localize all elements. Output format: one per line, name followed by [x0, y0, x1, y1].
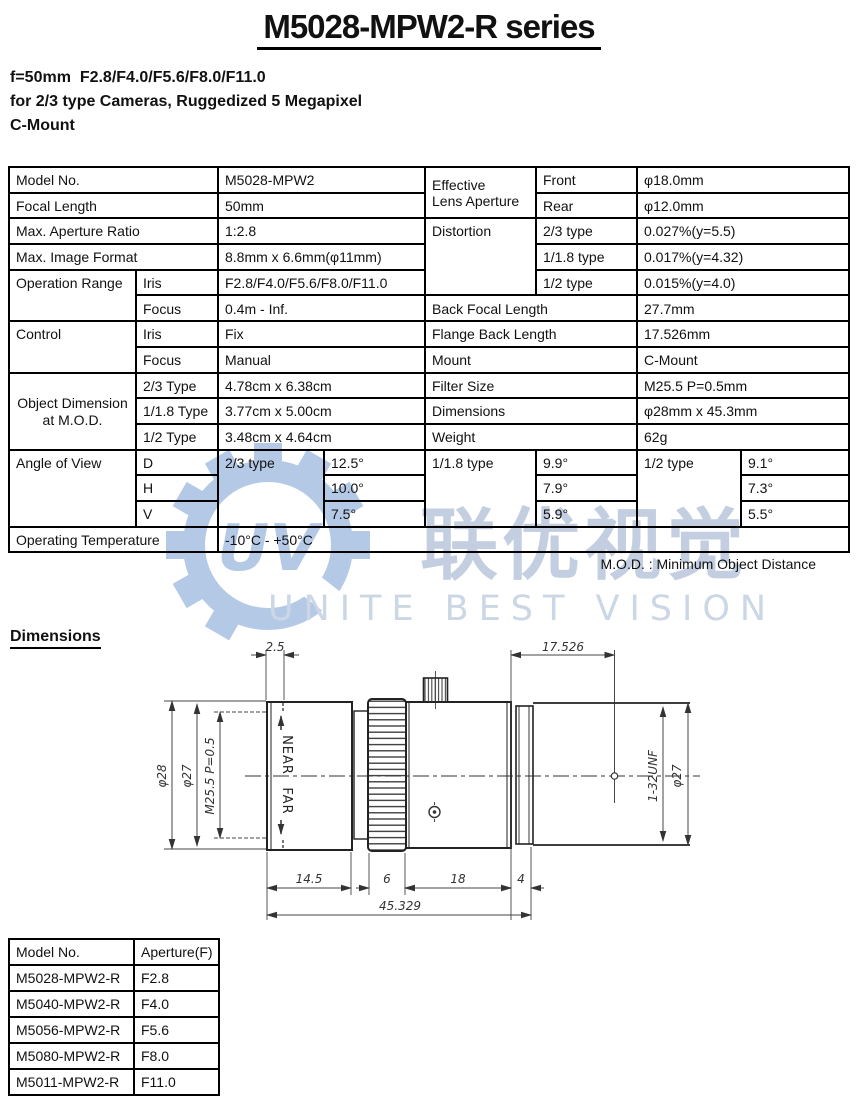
aperture-cell: F5.6: [134, 1017, 219, 1043]
spec-cell: 1/2 type: [637, 450, 741, 527]
spec-cell: M5028-MPW2: [218, 167, 425, 193]
spec-cell: Filter Size: [425, 373, 637, 399]
set-screw-hole: [429, 802, 440, 822]
watermark-en-text: UNITE BEST VISION: [268, 589, 776, 629]
spec-cell: φ12.0mm: [637, 193, 849, 219]
spec-cell: 17.526mm: [637, 321, 849, 347]
dim-17-526: 17.526: [511, 640, 615, 920]
spec-cell-line: Effective: [432, 177, 485, 193]
spec-cell: Dimensions: [425, 398, 637, 424]
spec-cell: 2/3 type: [218, 450, 324, 527]
model-cell: M5011-MPW2-R: [9, 1069, 134, 1095]
dim-2-5-label: 2.5: [265, 640, 284, 654]
title-wrap: M5028-MPW2-R series: [0, 8, 858, 50]
spec-cell: 3.48cm x 4.64cm: [218, 424, 425, 450]
spec-cell: 1:2.8: [218, 218, 425, 244]
dim-18: 18: [405, 872, 511, 888]
dim-6: 6: [356, 872, 418, 888]
spec-cell-line: Lens Aperture: [432, 193, 519, 209]
lens-body: [406, 702, 511, 848]
table-row: M5080-MPW2-R F8.0: [9, 1043, 219, 1069]
spec-cell: Focal Length: [9, 193, 218, 219]
spec-cell: φ18.0mm: [637, 167, 849, 193]
page-title: M5028-MPW2-R series: [257, 8, 600, 50]
spec-cell: 10.0°: [324, 475, 425, 501]
dim-18-label: 18: [450, 872, 466, 886]
spec-table: Model No. M5028-MPW2 EffectiveLens Apert…: [8, 166, 850, 553]
table-row: Object Dimensionat M.O.D. 2/3 Type 4.78c…: [9, 373, 849, 399]
spec-cell: Focus: [136, 295, 218, 321]
table-row: Control Iris Fix Flange Back Length 17.5…: [9, 321, 849, 347]
lock-screw: [424, 671, 448, 709]
spec-cell: Control: [9, 321, 136, 372]
far-label: FAR: [279, 787, 294, 814]
table-row: M5056-MPW2-R F5.6: [9, 1017, 219, 1043]
model-table-header: Model No.: [9, 939, 134, 965]
phi27-left-label: φ27: [180, 764, 194, 788]
header-line-focal: f=50mm F2.8/F4.0/F5.6/F8.0/F11.0: [10, 66, 362, 90]
dim-6-label: 6: [383, 872, 391, 886]
spec-cell: 62g: [637, 424, 849, 450]
table-row: Max. Aperture Ratio 1:2.8 Distortion 2/3…: [9, 218, 849, 244]
table-row: Operating Temperature -10°C - +50°C: [9, 527, 849, 553]
focus-ring-knurl: [368, 699, 406, 851]
spec-cell: M25.5 P=0.5mm: [637, 373, 849, 399]
m25-label: M25.5 P=0.5: [203, 737, 217, 814]
dim-total: 45.329: [267, 899, 531, 915]
barrel-step: [354, 711, 368, 839]
spec-cell: 5.9°: [536, 501, 637, 527]
spec-cell: Distortion: [425, 218, 536, 295]
spec-cell: Weight: [425, 424, 637, 450]
spec-cell: 0.015%(y=4.0): [637, 270, 849, 296]
table-row: Angle of View D 2/3 type 12.5° 1/1.8 typ…: [9, 450, 849, 476]
spec-cell: Focus: [136, 347, 218, 373]
spec-cell: Object Dimensionat M.O.D.: [9, 373, 136, 450]
spec-cell: Max. Aperture Ratio: [9, 218, 218, 244]
spec-cell: Rear: [536, 193, 637, 219]
spec-cell: V: [136, 501, 218, 527]
spec-cell: 7.5°: [324, 501, 425, 527]
spec-cell: Front: [536, 167, 637, 193]
spec-cell: 2/3 type: [536, 218, 637, 244]
spec-cell: Iris: [136, 321, 218, 347]
dim-2-5: 2.5: [251, 640, 299, 700]
spec-cell: C-Mount: [637, 347, 849, 373]
spec-cell: Model No.: [9, 167, 218, 193]
spec-cell: Max. Image Format: [9, 244, 218, 270]
dim-total-label: 45.329: [379, 899, 421, 913]
spec-cell: 0.027%(y=5.5): [637, 218, 849, 244]
spec-cell: 1/2 type: [536, 270, 637, 296]
table-row: M5011-MPW2-R F11.0: [9, 1069, 219, 1095]
spec-cell: 9.1°: [741, 450, 849, 476]
aperture-cell: F4.0: [134, 991, 219, 1017]
lens-dimension-drawing: NEAR FAR: [0, 640, 858, 940]
spec-cell-line: at M.O.D.: [43, 412, 103, 428]
spec-cell: 7.9°: [536, 475, 637, 501]
model-cell: M5080-MPW2-R: [9, 1043, 134, 1069]
mod-note: M.O.D. : Minimum Object Distance: [601, 556, 817, 572]
aperture-cell: F11.0: [134, 1069, 219, 1095]
table-row: M5040-MPW2-R F4.0: [9, 991, 219, 1017]
spec-cell: 27.7mm: [637, 295, 849, 321]
spec-cell: φ28mm x 45.3mm: [637, 398, 849, 424]
unf-label: 1-32UNF: [646, 749, 660, 802]
spec-cell: 50mm: [218, 193, 425, 219]
spec-cell: 1/1.8 type: [425, 450, 536, 527]
spec-cell: 1/1.8 Type: [136, 398, 218, 424]
spec-cell: 0.017%(y=4.32): [637, 244, 849, 270]
table-row: Model No. Aperture(F): [9, 939, 219, 965]
spec-cell: 7.3°: [741, 475, 849, 501]
spec-cell: 4.78cm x 6.38cm: [218, 373, 425, 399]
dim-4: 4: [498, 872, 544, 888]
spec-cell: H: [136, 475, 218, 501]
header-line-cameras: for 2/3 type Cameras, Ruggedized 5 Megap…: [10, 90, 362, 114]
spec-cell: Manual: [218, 347, 425, 373]
spec-cell: 1/2 Type: [136, 424, 218, 450]
table-row: M5028-MPW2-R F2.8: [9, 965, 219, 991]
near-label: NEAR: [279, 735, 294, 775]
spec-cell-line: Object Dimension: [17, 395, 128, 411]
model-cell: M5028-MPW2-R: [9, 965, 134, 991]
dim-4-label: 4: [517, 872, 525, 886]
dim-14-5-label: 14.5: [296, 872, 323, 886]
spec-cell: D: [136, 450, 218, 476]
spec-cell: 0.4m - Inf.: [218, 295, 425, 321]
spec-cell: Operation Range: [9, 270, 136, 321]
spec-cell: 5.5°: [741, 501, 849, 527]
spec-cell: Fix: [218, 321, 425, 347]
aperture-cell: F8.0: [134, 1043, 219, 1069]
model-table-header: Aperture(F): [134, 939, 219, 965]
spec-cell: F2.8/F4.0/F5.6/F8.0/F11.0: [218, 270, 425, 296]
datasheet-page: UV 联优视觉 UNITE BEST VISION M5028-MPW2-R s…: [0, 0, 858, 1101]
c-mount-thread: [516, 706, 533, 844]
model-cell: M5056-MPW2-R: [9, 1017, 134, 1043]
aperture-cell: F2.8: [134, 965, 219, 991]
phi28-label: φ28: [155, 764, 169, 788]
spec-cell: Flange Back Length: [425, 321, 637, 347]
spec-cell: 12.5°: [324, 450, 425, 476]
image-plane-marker: [611, 650, 617, 803]
spec-cell: Angle of View: [9, 450, 136, 527]
spec-cell: 2/3 Type: [136, 373, 218, 399]
table-row: Model No. M5028-MPW2 EffectiveLens Apert…: [9, 167, 849, 193]
spec-cell: Back Focal Length: [425, 295, 637, 321]
spec-cell: -10°C - +50°C: [218, 527, 849, 553]
spec-cell: 1/1.8 type: [536, 244, 637, 270]
dim-17-526-label: 17.526: [542, 640, 584, 654]
spec-cell: Operating Temperature: [9, 527, 218, 553]
header-line-mount: C-Mount: [10, 114, 362, 138]
spec-cell: EffectiveLens Aperture: [425, 167, 536, 218]
spec-cell: 8.8mm x 6.6mm(φ11mm): [218, 244, 425, 270]
spec-cell: Mount: [425, 347, 637, 373]
phi27-right-label: φ27: [670, 764, 684, 788]
spec-cell: 3.77cm x 5.00cm: [218, 398, 425, 424]
header-block: f=50mm F2.8/F4.0/F5.6/F8.0/F11.0 for 2/3…: [10, 66, 362, 138]
dim-14-5: 14.5: [267, 872, 351, 888]
model-cell: M5040-MPW2-R: [9, 991, 134, 1017]
spec-cell: 9.9°: [536, 450, 637, 476]
model-list-table: Model No. Aperture(F) M5028-MPW2-R F2.8 …: [8, 938, 220, 1096]
spec-cell: Iris: [136, 270, 218, 296]
